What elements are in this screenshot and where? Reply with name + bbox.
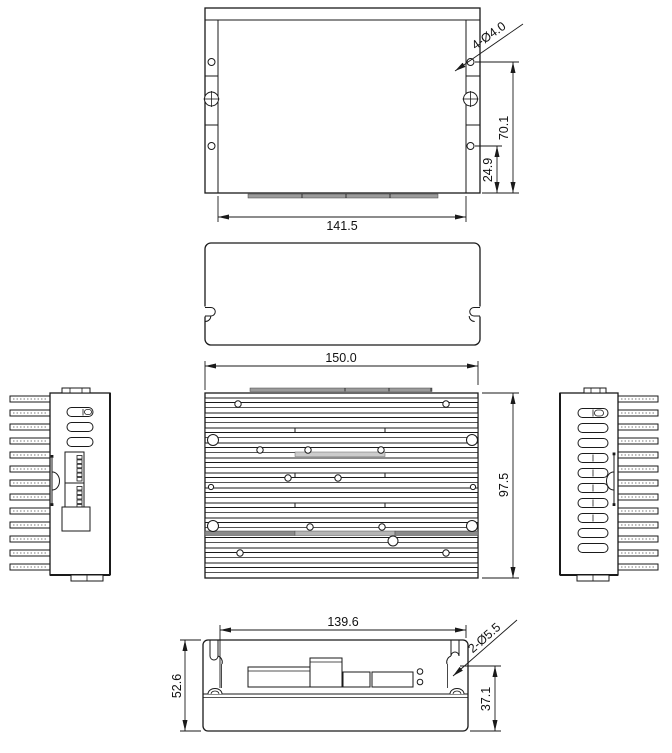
front-view: 150.0 97.5 [205, 351, 519, 578]
mounting-hole [208, 59, 215, 66]
dimension-drawing: 141.5 70.1 24.9 4-Ø4.0 [0, 0, 672, 753]
dim-label-front-width: 150.0 [325, 351, 356, 365]
cover-outline [205, 243, 480, 345]
cover-view [203, 243, 482, 345]
dim-label-bottom-height-left: 52.6 [170, 674, 184, 698]
right-side-view [560, 388, 658, 581]
top-tab [584, 388, 606, 393]
dim-label-front-height: 97.5 [497, 473, 511, 497]
dimension-drawing-canvas: 141.5 70.1 24.9 4-Ø4.0 [0, 0, 672, 753]
left-side-view [10, 388, 110, 581]
dim-front-height: 97.5 [482, 393, 519, 578]
top-view-body [205, 8, 480, 193]
vent-slots-left [67, 408, 93, 447]
dim-front-width: 150.0 [205, 351, 478, 390]
heatsink-fins-left [10, 396, 50, 570]
dip-switch [65, 452, 84, 508]
led-indicator [417, 669, 423, 675]
mounting-hole [467, 143, 474, 150]
connector-strip [248, 194, 438, 198]
dim-label-top-width: 141.5 [326, 219, 357, 233]
connector-block [62, 507, 90, 531]
mounting-hole [208, 143, 215, 150]
bottom-view: 139.6 52.6 37.1 2-Ø5.5 [170, 615, 517, 731]
top-tab [62, 388, 90, 393]
dim-bottom-height-left: 52.6 [170, 640, 201, 731]
dim-top-width: 141.5 [218, 196, 466, 233]
dim-label-bottom-height-right: 37.1 [479, 687, 493, 711]
dim-label-bottom-width: 139.6 [327, 615, 358, 629]
dim-label-top-offset: 24.9 [481, 158, 495, 182]
dim-label-top-height: 70.1 [497, 116, 511, 140]
top-connector-strip [250, 388, 432, 392]
top-view: 141.5 70.1 24.9 4-Ø4.0 [204, 8, 524, 233]
heatsink-fins-right [618, 396, 658, 570]
led-indicator [417, 679, 423, 685]
callout-label-bottom-holes: 2-Ø5.5 [465, 620, 503, 656]
